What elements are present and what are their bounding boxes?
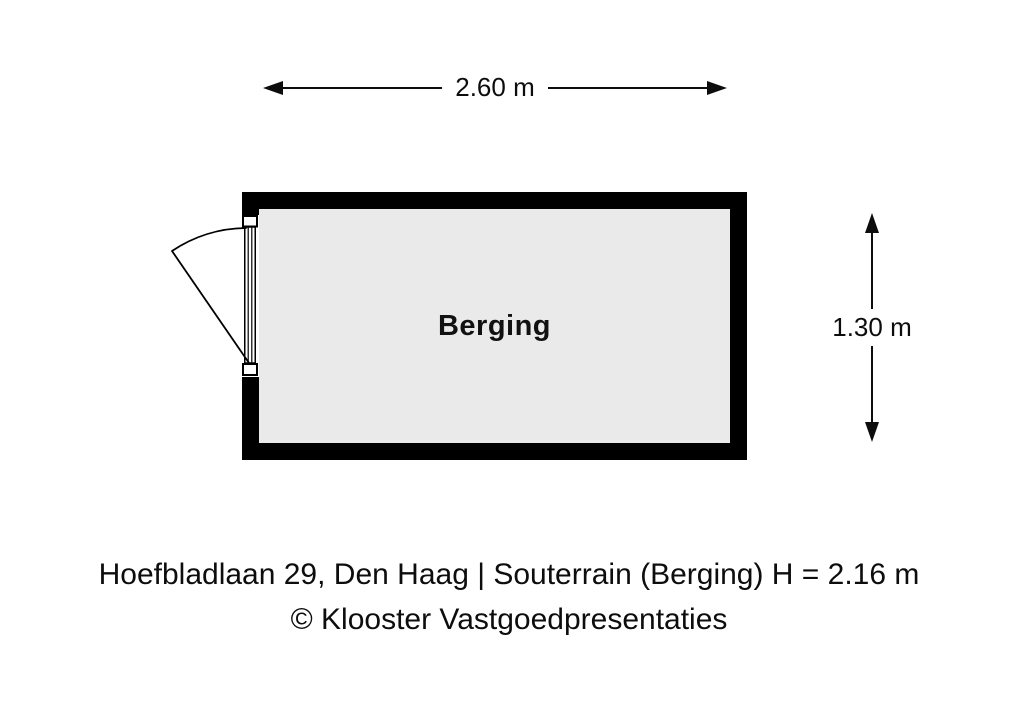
arrow-right-icon	[707, 81, 727, 95]
caption-address: Hoefbladlaan 29, Den Haag | Souterrain (…	[0, 552, 1018, 597]
door-jamb-bottom	[243, 364, 257, 375]
floorplan-canvas: 2.60 m Berging 1.30 m Hoefbladlaan 29, D…	[0, 0, 1018, 720]
dimension-line-top	[871, 233, 873, 309]
arrow-left-icon	[263, 81, 283, 95]
height-dimension-label: 1.30 m	[832, 309, 912, 346]
room-label: Berging	[438, 310, 551, 343]
dimension-line-bottom	[871, 346, 873, 422]
door-swing-arc-icon	[172, 228, 249, 363]
door	[158, 210, 263, 382]
width-dimension-label: 2.60 m	[442, 74, 548, 101]
door-jamb-top	[243, 216, 257, 227]
caption-copyright: © Klooster Vastgoedpresentaties	[0, 597, 1018, 642]
arrow-down-icon	[865, 422, 879, 442]
height-dimension: 1.30 m	[833, 213, 911, 442]
dimension-line-right	[548, 87, 707, 89]
width-dimension: 2.60 m	[263, 74, 727, 101]
arrow-up-icon	[865, 213, 879, 233]
door-leaf	[245, 227, 256, 363]
room-berging: Berging	[242, 192, 747, 460]
dimension-line-left	[283, 87, 442, 89]
caption: Hoefbladlaan 29, Den Haag | Souterrain (…	[0, 552, 1018, 642]
